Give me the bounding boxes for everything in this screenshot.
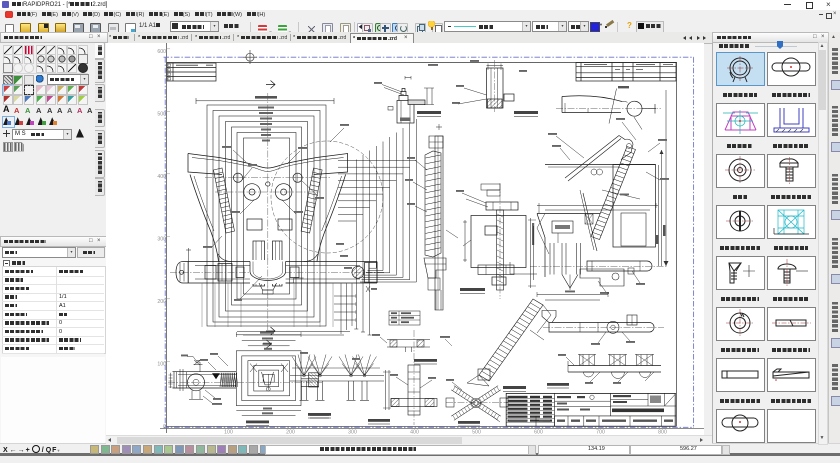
svg-text:200: 200 (157, 299, 166, 305)
svg-text:300: 300 (157, 237, 166, 243)
svg-text:0: 0 (163, 424, 166, 430)
svg-text:600: 600 (157, 49, 166, 55)
svg-text:500: 500 (157, 112, 166, 118)
svg-text:100: 100 (157, 362, 166, 368)
svg-text:400: 400 (157, 174, 166, 180)
